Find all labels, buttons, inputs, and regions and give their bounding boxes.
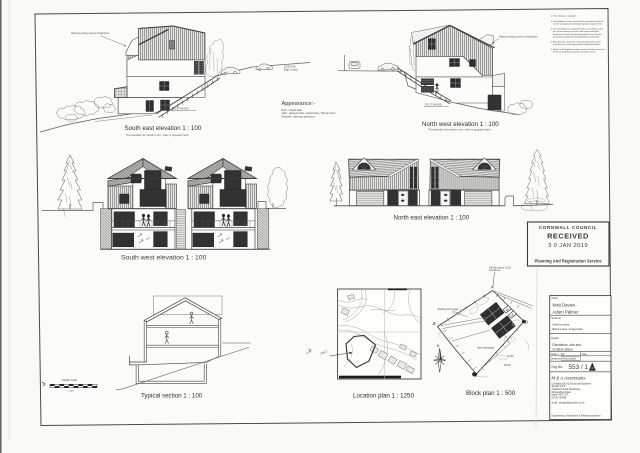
svg-text:Elevations, site and: Elevations, site and xyxy=(553,343,582,347)
svg-text:3 0 JAN 2019: 3 0 JAN 2019 xyxy=(548,243,588,249)
svg-text:Drawn by: Drawn by xyxy=(551,358,562,361)
svg-text:Treglisson Rural Workshops: Treglisson Rural Workshops xyxy=(552,388,582,391)
svg-text:553 / 1: 553 / 1 xyxy=(569,364,589,371)
svg-text:FFL 77.94 AOD: FFL 77.94 AOD xyxy=(425,104,442,107)
svg-text:1:100: 1:100 xyxy=(68,391,74,393)
svg-text:formalised: formalised xyxy=(489,269,501,272)
svg-text:FFL 37.94 AOD: FFL 37.94 AOD xyxy=(172,108,189,111)
svg-text:40.09: 40.09 xyxy=(504,363,511,367)
svg-text:Consulting Civil & Structural: Consulting Civil & Structural Engineers xyxy=(552,382,592,385)
svg-text:Edge of road: Edge of road xyxy=(284,69,298,72)
svg-text:Drg No.: Drg No. xyxy=(552,365,564,369)
svg-text:South east elevation 1 : 100: South east elevation 1 : 100 xyxy=(125,125,202,132)
svg-text:Appearance:-: Appearance:- xyxy=(282,101,316,107)
svg-text:Hayle TR27 5JT: Hayle TR27 5JT xyxy=(552,395,569,397)
svg-text:Detail: Detail xyxy=(551,336,559,340)
svg-text:CORNWALL COUNCIL: CORNWALL COUNCIL xyxy=(539,225,597,230)
svg-text:easements are to be agreed wit: easements are to be agreed with South We… xyxy=(553,43,600,46)
svg-text:Location plan 1 : 1250: Location plan 1 : 1250 xyxy=(353,393,414,400)
svg-text:This elevation for western uni: This elevation for western unit - other … xyxy=(126,133,189,137)
svg-text:Planning And Registration Serv: Planning And Registration Service xyxy=(535,259,603,264)
svg-text:Wheal Alfred Road: Wheal Alfred Road xyxy=(552,391,572,394)
svg-text:current and approved building: current and approved building regulation… xyxy=(553,23,602,26)
svg-text:dimensions shown and the desig: dimensions shown and the designated site… xyxy=(553,33,602,36)
svg-text:South west elevation 1 : 100: South west elevation 1 : 100 xyxy=(121,255,207,262)
svg-text:Typical section 1 : 100: Typical section 1 : 100 xyxy=(141,393,203,400)
svg-text:Adam Palmer: Adam Palmer xyxy=(553,310,580,315)
svg-text:This elevation for western uni: This elevation for western unit - other … xyxy=(428,128,491,132)
svg-text:A: A xyxy=(490,285,494,291)
svg-text:1. This drawing is copyright: 1. This drawing is copyright xyxy=(551,15,576,18)
svg-text:Date: Date xyxy=(582,353,588,356)
svg-text:4. Any drainage and works in t: 4. Any drainage and works in the proximi… xyxy=(551,40,601,43)
svg-text:Windows - dark grey aluminium: Windows - dark grey aluminium xyxy=(282,115,315,118)
svg-text:amended and agreed in England: amended and agreed in England before sub… xyxy=(553,35,599,38)
svg-text:New houses: New houses xyxy=(553,322,570,326)
svg-text:North east elevation 1 : 100: North east elevation 1 : 100 xyxy=(394,215,470,222)
svg-text:New soakaways: New soakaways xyxy=(477,347,495,350)
svg-text:Scale 1 : 100: Scale 1 : 100 xyxy=(551,354,565,356)
svg-text:Engineering, Architecture & Pl: Engineering, Architecture & Planning sol… xyxy=(552,414,602,417)
svg-text:Back Lane, Angarrack: Back Lane, Angarrack xyxy=(553,327,584,331)
svg-text:Client: Client xyxy=(551,296,558,300)
svg-text:Obscure privacy screen to balc: Obscure privacy screen to balconies xyxy=(71,32,110,35)
svg-text:Block plan 1 : 500: Block plan 1 : 500 xyxy=(466,390,516,397)
svg-text:RECEIVED: RECEIVED xyxy=(547,232,589,241)
svg-text:Graphic Scale: Graphic Scale xyxy=(62,379,78,382)
svg-text:Studios 5 & 6: Studios 5 & 6 xyxy=(552,385,566,388)
svg-text:Matt Davies: Matt Davies xyxy=(553,303,576,308)
svg-text:3. The development is approved: 3. The development is approved to be in … xyxy=(551,28,603,31)
svg-text:N: N xyxy=(437,344,440,348)
svg-text:the current setting out of the: the current setting out of the road kerb… xyxy=(553,30,599,33)
svg-text:5. Works to the highway requir: 5. Works to the highway require consent … xyxy=(551,48,605,51)
svg-text:of the local highway authority: of the local highway authority Cornwall … xyxy=(553,51,596,54)
svg-text:email - designit@psionline.c: email - designit@psionline.co.uk xyxy=(552,401,586,404)
svg-text:01736 754968: 01736 754968 xyxy=(552,397,567,399)
svg-text:location plans: location plans xyxy=(553,347,574,351)
svg-text:North west elevation 1 : 100: North west elevation 1 : 100 xyxy=(422,121,499,128)
svg-text:Obscure privacy screen to balc: Obscure privacy screen to balconies xyxy=(499,36,538,39)
svg-text:Scheme: Scheme xyxy=(551,316,561,320)
svg-text:2. The building is to be const: 2. The building is to be constructed in … xyxy=(551,20,605,23)
svg-text:Andy Latham: Andy Latham xyxy=(563,358,577,361)
svg-text:41.52: 41.52 xyxy=(507,354,514,358)
svg-text:M & A Associates: M & A Associates xyxy=(552,376,587,381)
